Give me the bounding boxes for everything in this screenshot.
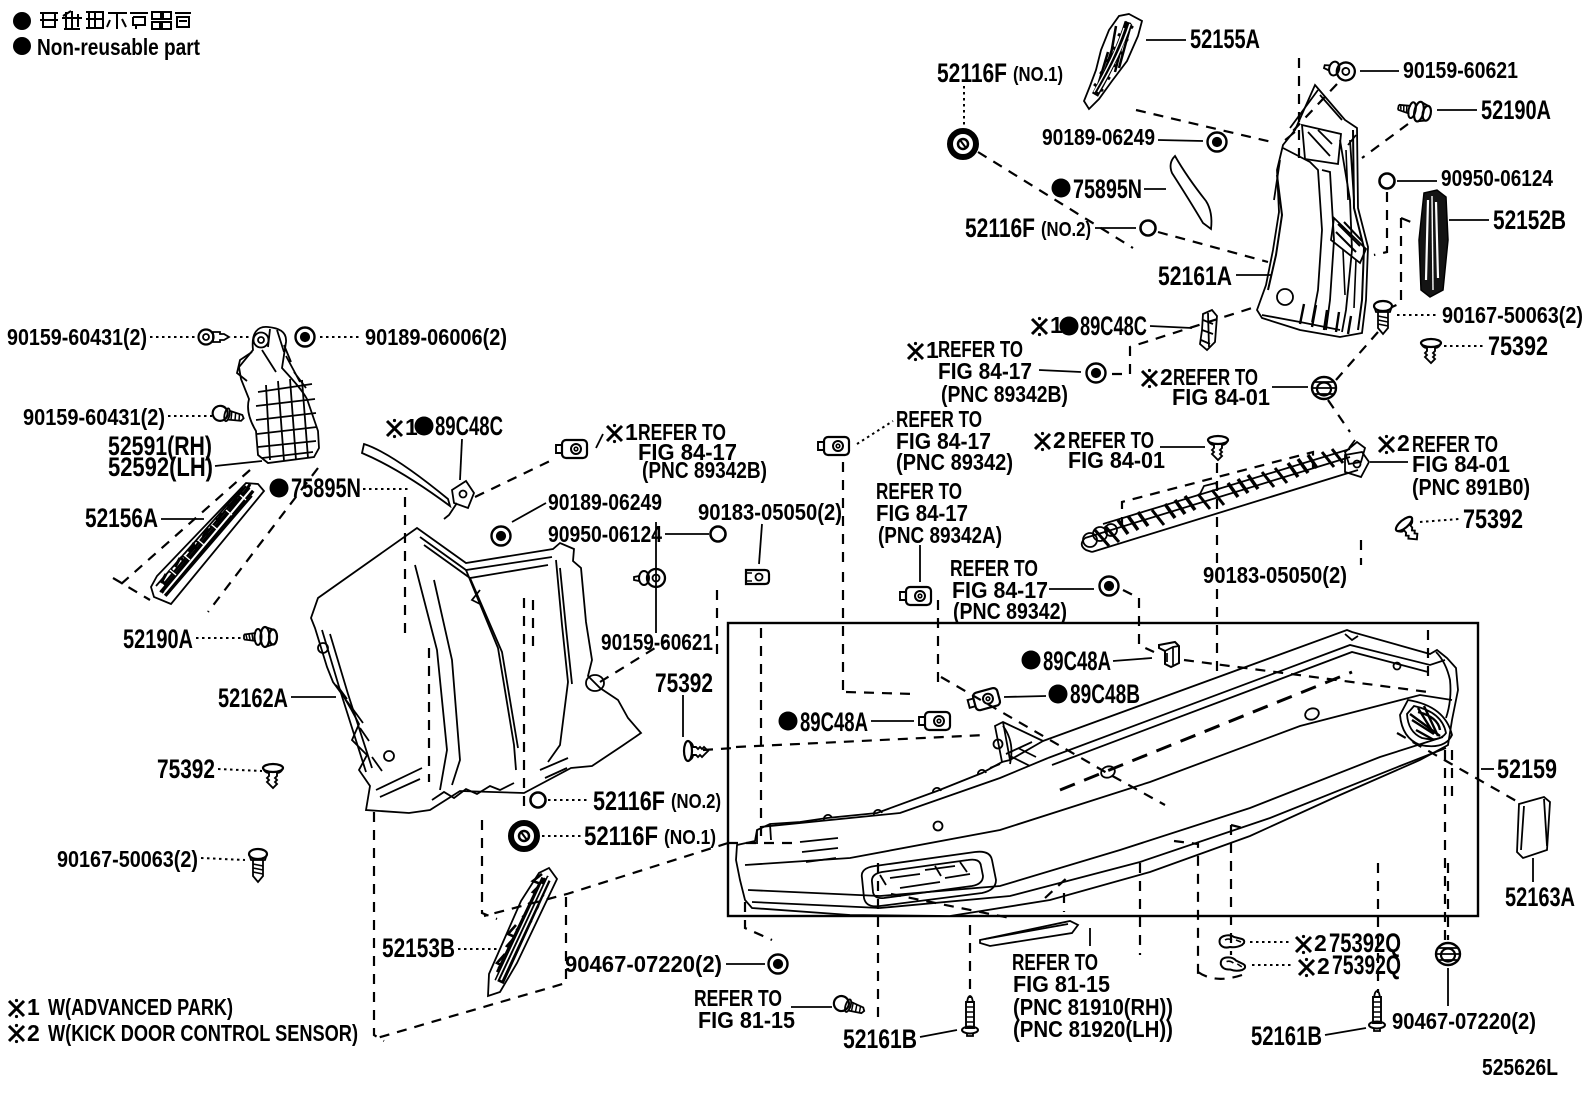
svg-text:2: 2 (1317, 953, 1330, 979)
svg-text:52155A: 52155A (1190, 24, 1260, 54)
svg-text:FIG 84-01: FIG 84-01 (1172, 384, 1270, 410)
svg-text:(PNC 81920(LH)): (PNC 81920(LH)) (1013, 1016, 1173, 1042)
svg-text:52116F: 52116F (937, 58, 1007, 88)
svg-text:(NO.1): (NO.1) (1013, 64, 1063, 86)
svg-text:90183-05050(2): 90183-05050(2) (698, 499, 842, 525)
svg-text:52162A: 52162A (218, 683, 288, 713)
svg-text:(PNC 891B0): (PNC 891B0) (1412, 474, 1530, 500)
svg-text:90467-07220(2): 90467-07220(2) (565, 951, 722, 977)
svg-text:89C48A: 89C48A (1043, 646, 1111, 676)
svg-text:89C48A: 89C48A (800, 707, 868, 737)
svg-text:90183-05050(2): 90183-05050(2) (1203, 562, 1347, 588)
svg-text:52161B: 52161B (1251, 1021, 1322, 1051)
svg-text:90159-60621: 90159-60621 (1403, 57, 1518, 83)
svg-text:90167-50063(2): 90167-50063(2) (57, 846, 198, 872)
svg-text:(NO.2): (NO.2) (671, 791, 721, 813)
svg-text:1: 1 (625, 419, 638, 445)
svg-text:75392: 75392 (1463, 504, 1523, 534)
svg-text:52116F: 52116F (593, 786, 665, 816)
svg-text:90189-06249: 90189-06249 (1042, 124, 1155, 150)
svg-text:90950-06124: 90950-06124 (548, 521, 662, 547)
svg-text:75895N: 75895N (1073, 174, 1142, 204)
svg-text:FIG 81-15: FIG 81-15 (698, 1007, 795, 1033)
svg-text:W(ADVANCED PARK): W(ADVANCED PARK) (48, 994, 233, 1020)
svg-text:52152B: 52152B (1493, 205, 1566, 235)
svg-text:(PNC 89342): (PNC 89342) (896, 449, 1013, 475)
svg-text:Non-reusable part: Non-reusable part (37, 34, 200, 60)
svg-text:52156A: 52156A (85, 503, 158, 533)
svg-text:52161A: 52161A (1158, 261, 1232, 291)
svg-text:(PNC 89342): (PNC 89342) (953, 598, 1067, 624)
svg-text:52592(LH): 52592(LH) (108, 452, 213, 482)
svg-text:75392Q: 75392Q (1332, 950, 1401, 980)
svg-text:90159-60431(2): 90159-60431(2) (23, 404, 165, 430)
svg-text:52159: 52159 (1497, 754, 1557, 784)
svg-text:52153B: 52153B (382, 933, 455, 963)
svg-text:52163A: 52163A (1505, 882, 1575, 912)
svg-text:90167-50063(2): 90167-50063(2) (1442, 302, 1583, 328)
svg-text:90189-06006(2): 90189-06006(2) (365, 324, 507, 350)
svg-text:1: 1 (27, 994, 40, 1020)
svg-text:52116F: 52116F (965, 213, 1035, 243)
svg-text:75392: 75392 (655, 668, 713, 698)
svg-text:2: 2 (1397, 430, 1410, 456)
svg-text:2: 2 (1160, 364, 1173, 390)
svg-text:FIG 84-01: FIG 84-01 (1068, 447, 1165, 473)
svg-text:(NO.1): (NO.1) (664, 827, 716, 849)
svg-text:(PNC 89342A): (PNC 89342A) (878, 522, 1002, 548)
svg-text:525626L: 525626L (1482, 1054, 1558, 1080)
svg-text:W(KICK DOOR CONTROL SENSOR): W(KICK DOOR CONTROL SENSOR) (48, 1020, 358, 1046)
svg-text:90159-60621: 90159-60621 (601, 629, 713, 655)
svg-text:89C48C: 89C48C (435, 411, 503, 441)
svg-text:(NO.2): (NO.2) (1041, 219, 1091, 241)
svg-text:90159-60431(2): 90159-60431(2) (7, 324, 147, 350)
svg-text:90950-06124: 90950-06124 (1441, 165, 1553, 191)
svg-text:89C48B: 89C48B (1070, 679, 1140, 709)
svg-text:89C48C: 89C48C (1080, 311, 1147, 341)
svg-text:2: 2 (27, 1020, 40, 1046)
svg-text:75392: 75392 (1488, 331, 1548, 361)
svg-text:90467-07220(2): 90467-07220(2) (1392, 1008, 1536, 1034)
svg-text:(PNC 89342B): (PNC 89342B) (642, 457, 767, 483)
svg-text:(PNC 89342B): (PNC 89342B) (941, 381, 1068, 407)
svg-text:52190A: 52190A (123, 624, 193, 654)
svg-text:52161B: 52161B (843, 1024, 917, 1054)
svg-text:75392: 75392 (157, 754, 215, 784)
svg-text:52190A: 52190A (1481, 95, 1551, 125)
svg-text:2: 2 (1053, 427, 1066, 453)
svg-text:52116F: 52116F (584, 821, 658, 851)
svg-text:90189-06249: 90189-06249 (548, 489, 662, 515)
